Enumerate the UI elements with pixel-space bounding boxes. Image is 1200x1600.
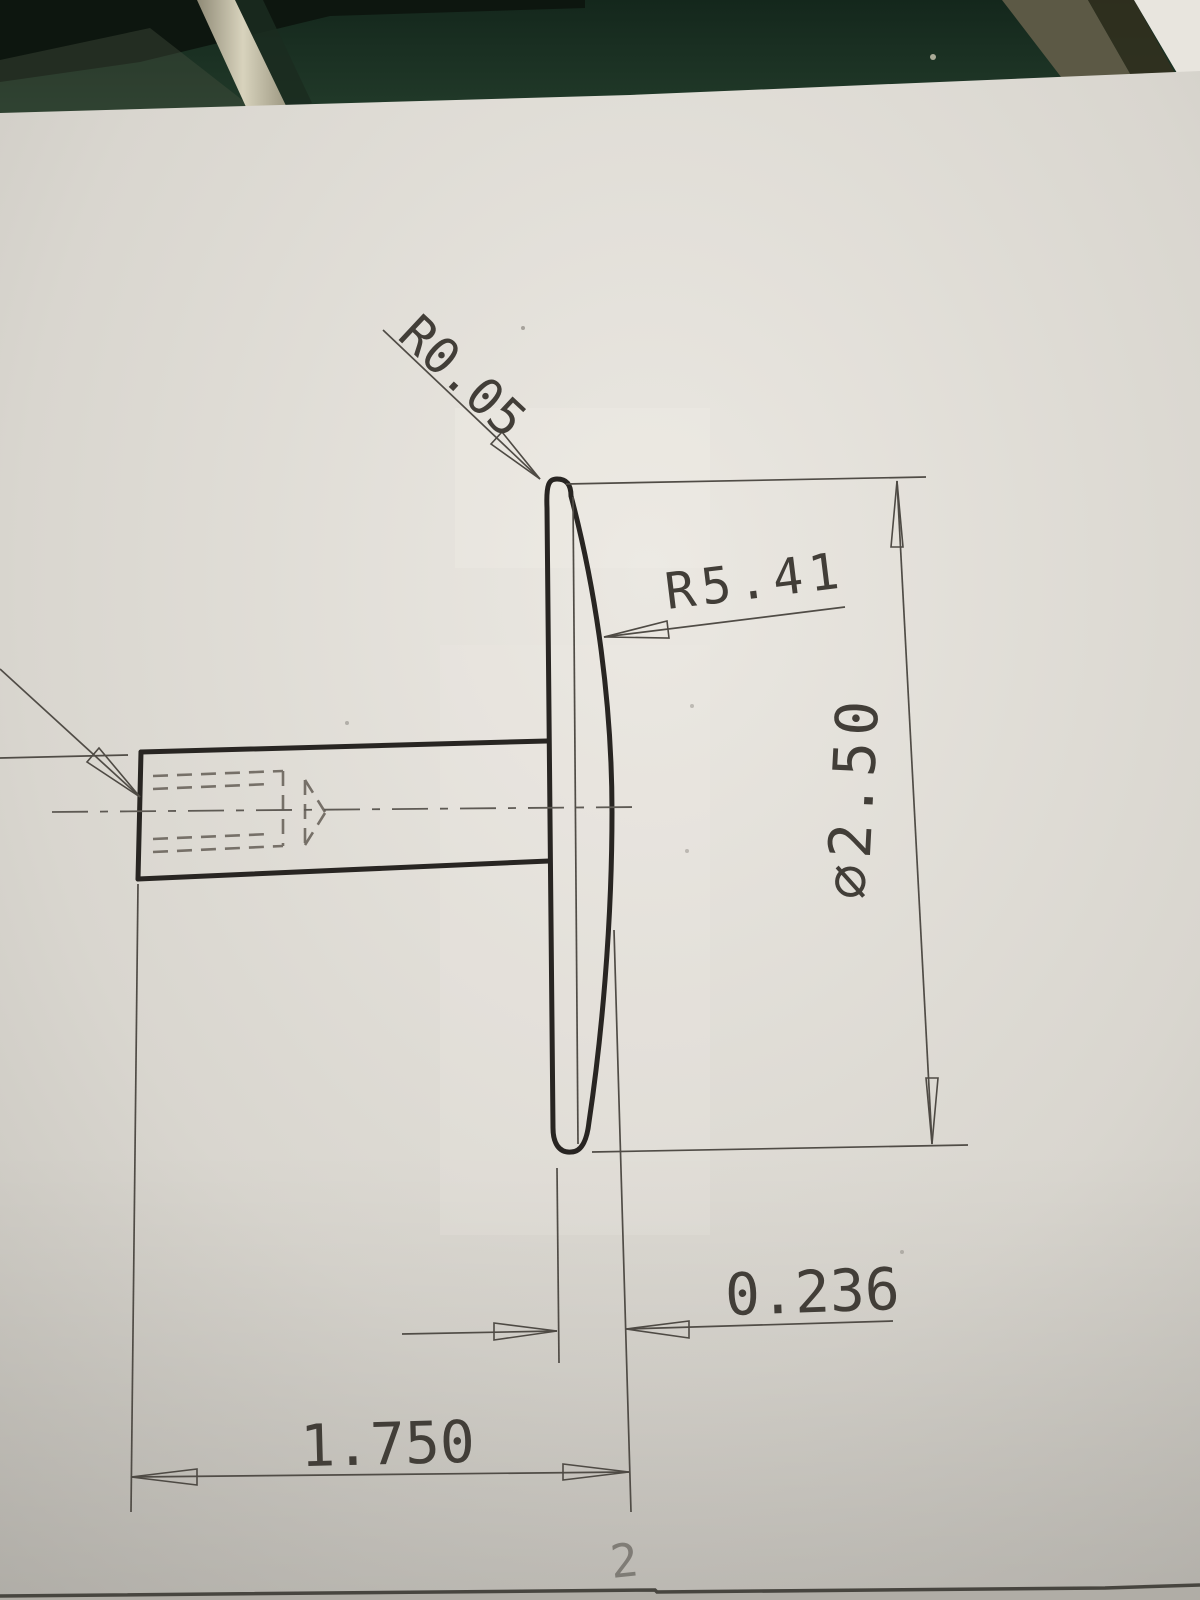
paper-speck <box>690 704 694 708</box>
photo-of-technical-drawing: R0.05 R5.41 ⌀2.50 0.236 1.750 2 <box>0 0 1200 1600</box>
pencil-smudge: 2 <box>608 1532 641 1589</box>
paper-speck <box>900 1250 904 1254</box>
technical-drawing-scene: R0.05 R5.41 ⌀2.50 0.236 1.750 2 <box>0 0 1200 1600</box>
head-diameter-label: ⌀2.50 <box>814 693 893 901</box>
paper-speck <box>345 721 349 725</box>
paper-speck <box>521 326 525 330</box>
table-speck <box>930 54 936 60</box>
shank-left-face <box>138 752 141 879</box>
paper-sheet <box>0 71 1200 1600</box>
paper-speck <box>685 849 689 853</box>
overall-length-label: 1.750 <box>299 1408 475 1481</box>
head-thickness-label: 0.236 <box>724 1255 901 1329</box>
